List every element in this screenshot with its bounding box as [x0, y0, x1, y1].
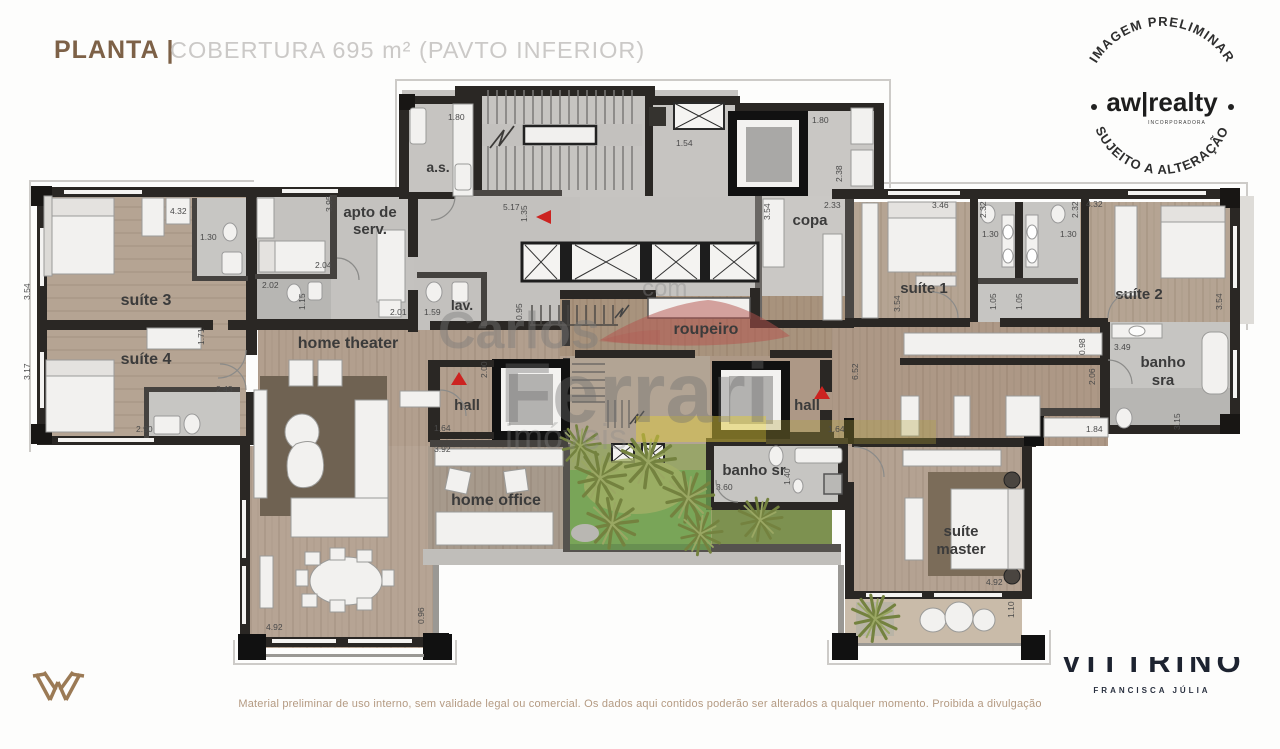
svg-text:4.32: 4.32 [1086, 199, 1103, 209]
svg-text:1.59: 1.59 [424, 307, 441, 317]
svg-text:COBERTURA 695 m² (PAVTO INFERI: COBERTURA 695 m² (PAVTO INFERIOR) [170, 37, 645, 63]
svg-text:1.05: 1.05 [1014, 293, 1024, 310]
svg-text:4.32: 4.32 [170, 206, 187, 216]
svg-text:1.30: 1.30 [200, 232, 217, 242]
svg-text:imóveis: imóveis [505, 416, 627, 457]
svg-text:4.92: 4.92 [266, 622, 283, 632]
svg-text:3.54: 3.54 [22, 283, 32, 300]
svg-text:suíte 1: suíte 1 [900, 280, 948, 297]
svg-text:Material preliminar de uso int: Material preliminar de uso interno, sem … [238, 698, 1041, 710]
svg-text:home office: home office [451, 492, 541, 509]
svg-text:hall: hall [794, 397, 820, 414]
svg-text:1.35: 1.35 [519, 205, 529, 222]
svg-text:master: master [936, 541, 985, 558]
svg-text:5.17: 5.17 [503, 202, 520, 212]
svg-text:2.00: 2.00 [479, 361, 489, 378]
svg-text:roupeiro: roupeiro [674, 321, 739, 338]
svg-text:2.43: 2.43 [216, 384, 233, 394]
svg-text:a.s.: a.s. [426, 159, 449, 175]
svg-text:1.10: 1.10 [1006, 601, 1016, 618]
svg-text:copa: copa [792, 212, 828, 229]
svg-text:apto de: apto de [343, 204, 396, 221]
svg-text:sra: sra [1152, 372, 1175, 389]
svg-text:INCORPORADORA: INCORPORADORA [1148, 120, 1206, 126]
svg-text:serv.: serv. [353, 221, 387, 238]
svg-text:PLANTA |: PLANTA | [54, 36, 175, 64]
svg-text:banho: banho [1141, 354, 1186, 371]
svg-text:4.92: 4.92 [986, 577, 1003, 587]
svg-text:lav.: lav. [451, 297, 473, 313]
svg-text:1.54: 1.54 [676, 138, 693, 148]
svg-text:3.17: 3.17 [22, 363, 32, 380]
svg-text:0.98: 0.98 [1077, 338, 1087, 355]
svg-text:3.54: 3.54 [762, 203, 772, 220]
svg-text:2.38: 2.38 [834, 165, 844, 182]
svg-text:3.92: 3.92 [434, 444, 451, 454]
svg-text:suíte 3: suíte 3 [121, 292, 172, 309]
svg-text:2.06: 2.06 [1087, 368, 1097, 385]
svg-text:1.15: 1.15 [297, 293, 307, 310]
svg-text:1.40: 1.40 [782, 468, 792, 485]
svg-text:2.32: 2.32 [978, 201, 988, 218]
svg-text:0.95: 0.95 [514, 303, 524, 320]
svg-text:aw|realty: aw|realty [1106, 87, 1218, 117]
svg-text:3.95: 3.95 [324, 195, 334, 212]
svg-text:2.32: 2.32 [1070, 201, 1080, 218]
svg-text:1.64: 1.64 [828, 424, 845, 434]
svg-text:com: com [642, 275, 687, 302]
svg-text:suíte: suíte [943, 523, 978, 540]
svg-text:1.84: 1.84 [1086, 424, 1103, 434]
svg-text:2.33: 2.33 [824, 200, 841, 210]
svg-text:banho sr: banho sr [722, 462, 786, 479]
svg-text:1.64: 1.64 [434, 423, 451, 433]
svg-text:1.80: 1.80 [812, 115, 829, 125]
svg-text:2.04: 2.04 [315, 260, 332, 270]
svg-text:1.05: 1.05 [988, 293, 998, 310]
svg-text:2.90: 2.90 [136, 424, 153, 434]
svg-text:1.30: 1.30 [1060, 229, 1077, 239]
svg-text:3.46: 3.46 [932, 200, 949, 210]
svg-text:0.96: 0.96 [416, 607, 426, 624]
svg-text:3.49: 3.49 [1114, 342, 1131, 352]
svg-text:suíte 4: suíte 4 [121, 351, 172, 368]
svg-text:2.02: 2.02 [262, 280, 279, 290]
svg-text:2.01: 2.01 [390, 307, 407, 317]
svg-text:3.15: 3.15 [1172, 413, 1182, 430]
svg-text:home theater: home theater [298, 335, 398, 352]
svg-text:3.54: 3.54 [1214, 293, 1224, 310]
svg-text:hall: hall [454, 397, 480, 414]
svg-text:1.80: 1.80 [448, 112, 465, 122]
svg-text:1.30: 1.30 [982, 229, 999, 239]
svg-text:6.52: 6.52 [850, 363, 860, 380]
svg-text:3.54: 3.54 [892, 295, 902, 312]
svg-text:1.71: 1.71 [196, 328, 206, 345]
